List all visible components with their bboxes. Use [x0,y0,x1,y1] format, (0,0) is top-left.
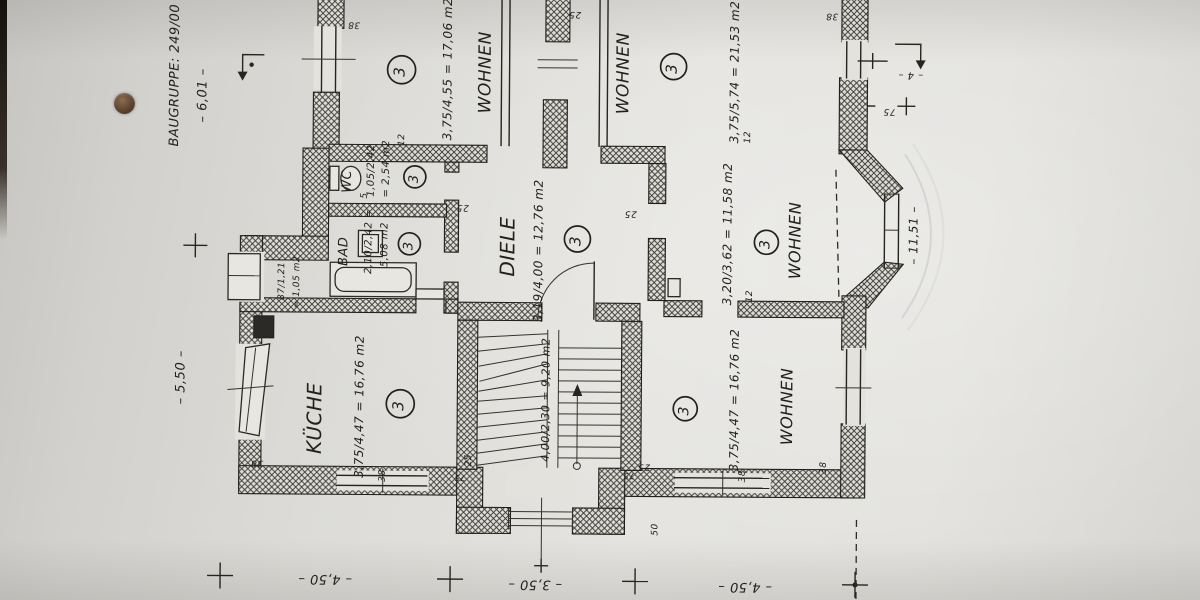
area-label-kueche: 3,75/4,47 = 16,76 m2 [352,335,367,478]
wall-number: 38 [251,458,264,468]
floor-badge-number: 3 [663,64,681,74]
tick-50: 50 [650,523,660,536]
kitchen-door-leaf [416,289,444,299]
tick-75-bump-right: 75 [623,471,634,480]
area-label-bad-2: 5,08 m2 [379,222,390,267]
area-label-wc-1: 1,05/2,42 [366,144,377,196]
wall-number: 12 [745,290,755,303]
room-label-wohnen-bottom-right: WOHNEN [777,368,797,446]
room-label-wc: WC [340,169,355,192]
wall-number: 12 [743,131,753,144]
wall-number: 25 [456,202,469,212]
floor-badge-number: 3 [757,240,773,250]
dim-11-51: – 11,51 – [906,206,920,265]
area-label-niche-1: 87/1,21 [277,262,287,300]
entrance-door-swing-arc [538,263,594,319]
wall-number: 38 [826,11,839,21]
labels: BAUGRUPPE: 249/00 – 6,01 – – 5,50 – – 11… [164,0,924,595]
area-label-staircase: 4,00/2,30 = 9,20 m2 [539,338,553,462]
dim-3-50: – 3,50 – [508,577,562,592]
scanned-floor-plan-photo: BAUGRUPPE: 249/00 – 6,01 – – 5,50 – – 11… [0,0,1200,600]
room-label-wohnen-top-right: WOHNEN [613,32,634,114]
floor-badge-number: 3 [391,67,409,77]
wall-number: 12 [397,133,407,146]
wall-number: 38 [378,469,388,482]
floor-badge-number: 3 [407,174,422,183]
dim-5-50: – 5,50 – [173,350,188,404]
floor-badge-number: 3 [401,241,416,250]
dim-4-50-left: – 4,50 – [298,571,352,586]
area-label-bad-1: 2,10/2,42 = [363,209,374,274]
tick-75-bump-left: 75 [454,473,465,482]
dim-4-50-right: – 4,50 – [718,579,772,594]
wall-number: 25 [638,461,651,471]
room-label-kueche: KÜCHE [302,382,326,454]
tick-75-right: 75 [883,106,896,116]
area-label-niche-2: = 1,05 m2 [292,256,302,308]
wall-number: 38 [348,19,361,29]
wall-number: 25 [624,208,637,218]
wall-number: 5 [360,192,370,198]
floor-badge-number: 3 [389,401,407,411]
room-label-wohnen-mid-right: WOHNEN [785,202,805,280]
room-label-bad: BAD [336,237,351,266]
dim-6-01: – 6,01 – [195,68,210,122]
reference-arrow-right [896,44,921,60]
wall-number: 25 [569,9,582,19]
baugruppe-label: BAUGRUPPE: 249/00 [167,4,183,147]
wall-number: 25 [464,454,474,467]
area-label-wc-2: = 2,54 m2 [381,140,392,198]
radiator [668,279,680,297]
wall-number: 38 [819,461,829,474]
area-label-diele: 3,19/4,00 = 12,76 m2 [531,179,546,322]
area-label-wohnen-bottom-right: 3,75/4,47 = 16,76 m2 [727,329,742,472]
floor-badge-number: 3 [566,236,584,246]
wall-number: 38 [738,470,748,483]
room-label-wohnen-top-left: WOHNEN [475,31,496,113]
toilet-tank [330,166,339,190]
mark-4: – 4 – [898,69,923,80]
floor-badge-number: 3 [676,406,692,416]
area-label-wohnen-top-left: 3,75/4,55 = 17,06 m2 [440,0,455,140]
area-label-wohnen-mid-right: 3,20/3,62 = 11,58 m2 [720,163,735,306]
floor-plan-svg: BAUGRUPPE: 249/00 – 6,01 – – 5,50 – – 11… [0,0,1200,600]
area-label-wohnen-top-right: 3,75/5,74 = 21,53 m2 [727,1,742,144]
room-label-diele: DIELE [495,216,519,276]
